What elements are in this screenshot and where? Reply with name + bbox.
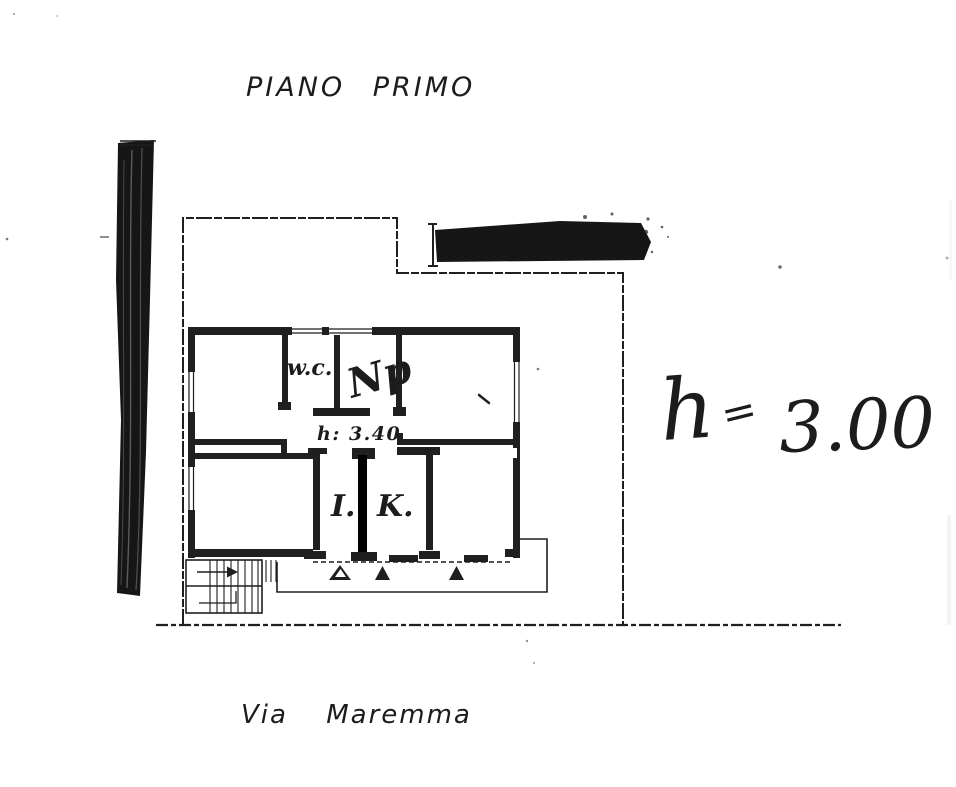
window-left-1 (186, 372, 197, 412)
speck-dash (100, 236, 109, 238)
title-block: PIANO PRIMO (246, 72, 475, 103)
window-left-2 (186, 467, 197, 510)
hedge-scribble-body (116, 140, 154, 596)
speck (533, 662, 535, 664)
window-top-2 (329, 325, 372, 336)
wall-k-right (426, 454, 433, 550)
wall-i-left-cap (308, 448, 327, 454)
wall-mid-upper-right (397, 439, 513, 445)
wall-corridor-bar (313, 408, 370, 416)
room-labels: w.c. Np h: 3.40 I. K. (287, 345, 417, 524)
wall-right (513, 327, 520, 558)
entrance-markers (329, 565, 464, 580)
room-i-label: I. (330, 489, 355, 524)
wall-center-thick (358, 455, 367, 555)
neighbor-scribble-body (435, 221, 651, 262)
threshold-sill-2 (464, 555, 488, 562)
entrance-triangle-3 (449, 566, 464, 580)
handwritten-h: h (657, 358, 718, 460)
wall-bottom-left (188, 549, 313, 557)
speck (56, 15, 58, 17)
speck (537, 368, 540, 371)
windows (186, 325, 522, 510)
entrance-triangle-2 (375, 566, 390, 580)
wall-right-notch (511, 448, 517, 458)
street-label-block: Via Maremma (241, 700, 472, 730)
threshold-sill-1 (389, 555, 418, 562)
scanned-floor-plan-page: PIANO PRIMO (0, 0, 956, 787)
speck (946, 257, 949, 260)
handwritten-value: 3.00 (778, 382, 937, 469)
wall-center-cap-bottom (351, 552, 377, 561)
wall-k-right-cap (397, 447, 440, 455)
stairs (186, 560, 276, 613)
floor-plan-drawing: PIANO PRIMO (0, 0, 956, 787)
handwritten-equals: = (716, 384, 762, 440)
speck (6, 238, 9, 241)
plan-title: PIANO PRIMO (246, 72, 475, 103)
room-wc-label: w.c. (287, 355, 332, 381)
wall-k-right-foot (419, 551, 440, 559)
room-k-label: K. (376, 489, 414, 524)
lot-boundary-line (183, 218, 623, 625)
room-np-handwritten-label: Np (340, 345, 417, 409)
hedge-scribble-left (116, 140, 156, 596)
window-right (511, 362, 522, 422)
wall-mid-lower-left (195, 453, 313, 459)
stairs-arrow-head (227, 567, 238, 578)
stairs-connector-treads (266, 560, 276, 582)
speck (526, 640, 528, 642)
window-top-1 (292, 325, 322, 336)
neighbor-scribble-top (428, 213, 669, 267)
wall-left (188, 327, 195, 558)
street-label: Via Maremma (241, 700, 472, 730)
printed-height-note: h: 3.40 (317, 423, 401, 445)
ink-tick (479, 395, 489, 403)
scan-edge-smudge (949, 200, 952, 280)
handwritten-annotation: h = 3.00 (657, 358, 937, 469)
speck (778, 265, 782, 269)
wall-wc-left-foot (278, 402, 291, 410)
speck (13, 13, 15, 15)
wall-i-left-foot (304, 551, 326, 559)
scan-edge-smudge (947, 515, 951, 625)
wall-i-left (313, 454, 320, 550)
wall-np-right-foot (393, 407, 406, 416)
wall-bottom-right-stub (505, 549, 520, 557)
wall-wc-right (334, 335, 340, 410)
wall-mid-upper-left (195, 439, 287, 445)
